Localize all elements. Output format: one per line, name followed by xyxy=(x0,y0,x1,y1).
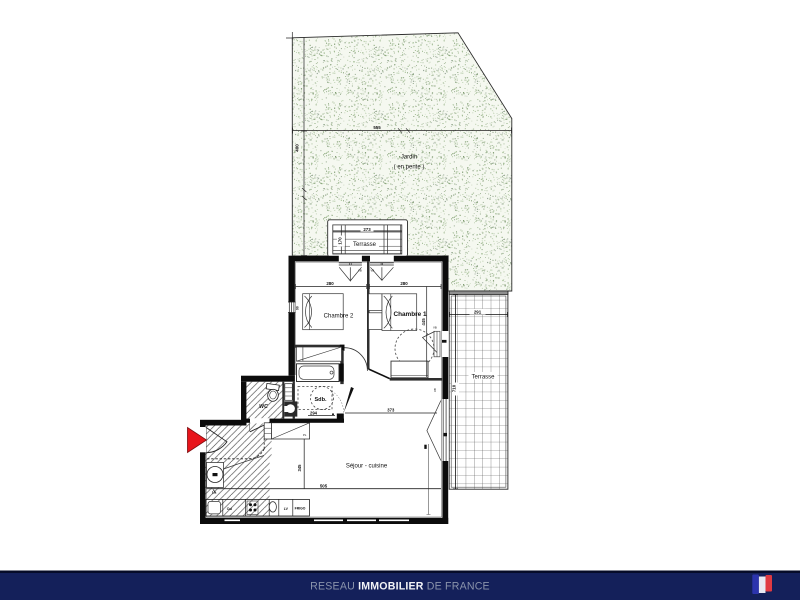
svg-text:400: 400 xyxy=(295,144,300,152)
svg-text:710: 710 xyxy=(452,384,457,392)
svg-text:( en pente ): ( en pente ) xyxy=(394,165,425,171)
svg-text:FRIGO: FRIGO xyxy=(295,507,306,511)
svg-text:Terrasse: Terrasse xyxy=(471,374,495,380)
svg-text:505: 505 xyxy=(320,484,328,489)
svg-text:Cui: Cui xyxy=(227,507,233,511)
svg-text:VB: VB xyxy=(433,388,437,392)
svg-text:VB: VB xyxy=(358,269,362,273)
svg-text:RESEAU IMMOBILIER DE FRANCE: RESEAU IMMOBILIER DE FRANCE xyxy=(310,581,490,593)
svg-text:PL: PL xyxy=(303,433,307,437)
svg-text:LV: LV xyxy=(284,507,289,511)
svg-text:373: 373 xyxy=(387,408,395,413)
svg-text:90: 90 xyxy=(296,306,300,310)
svg-text:345: 345 xyxy=(297,464,302,472)
svg-text:555: 555 xyxy=(373,125,381,130)
svg-text:Chambre 1: Chambre 1 xyxy=(393,311,426,318)
svg-text:445: 445 xyxy=(421,318,426,326)
svg-text:294: 294 xyxy=(310,411,318,416)
svg-text:Séjour - cuisine: Séjour - cuisine xyxy=(346,464,388,470)
svg-text:170: 170 xyxy=(338,237,343,245)
svg-text:280: 280 xyxy=(400,281,408,286)
svg-text:VB: VB xyxy=(433,326,437,330)
svg-text:280: 280 xyxy=(326,281,334,286)
svg-text:291: 291 xyxy=(474,310,482,315)
svg-text:Terrasse: Terrasse xyxy=(353,242,377,248)
svg-text:Sdb.: Sdb. xyxy=(314,397,327,403)
svg-text:WC: WC xyxy=(259,404,268,410)
svg-text:VB: VB xyxy=(371,269,375,273)
svg-text:Jardin: Jardin xyxy=(401,155,417,161)
svg-text:Chambre 2: Chambre 2 xyxy=(324,314,354,320)
svg-text:273: 273 xyxy=(363,227,371,232)
